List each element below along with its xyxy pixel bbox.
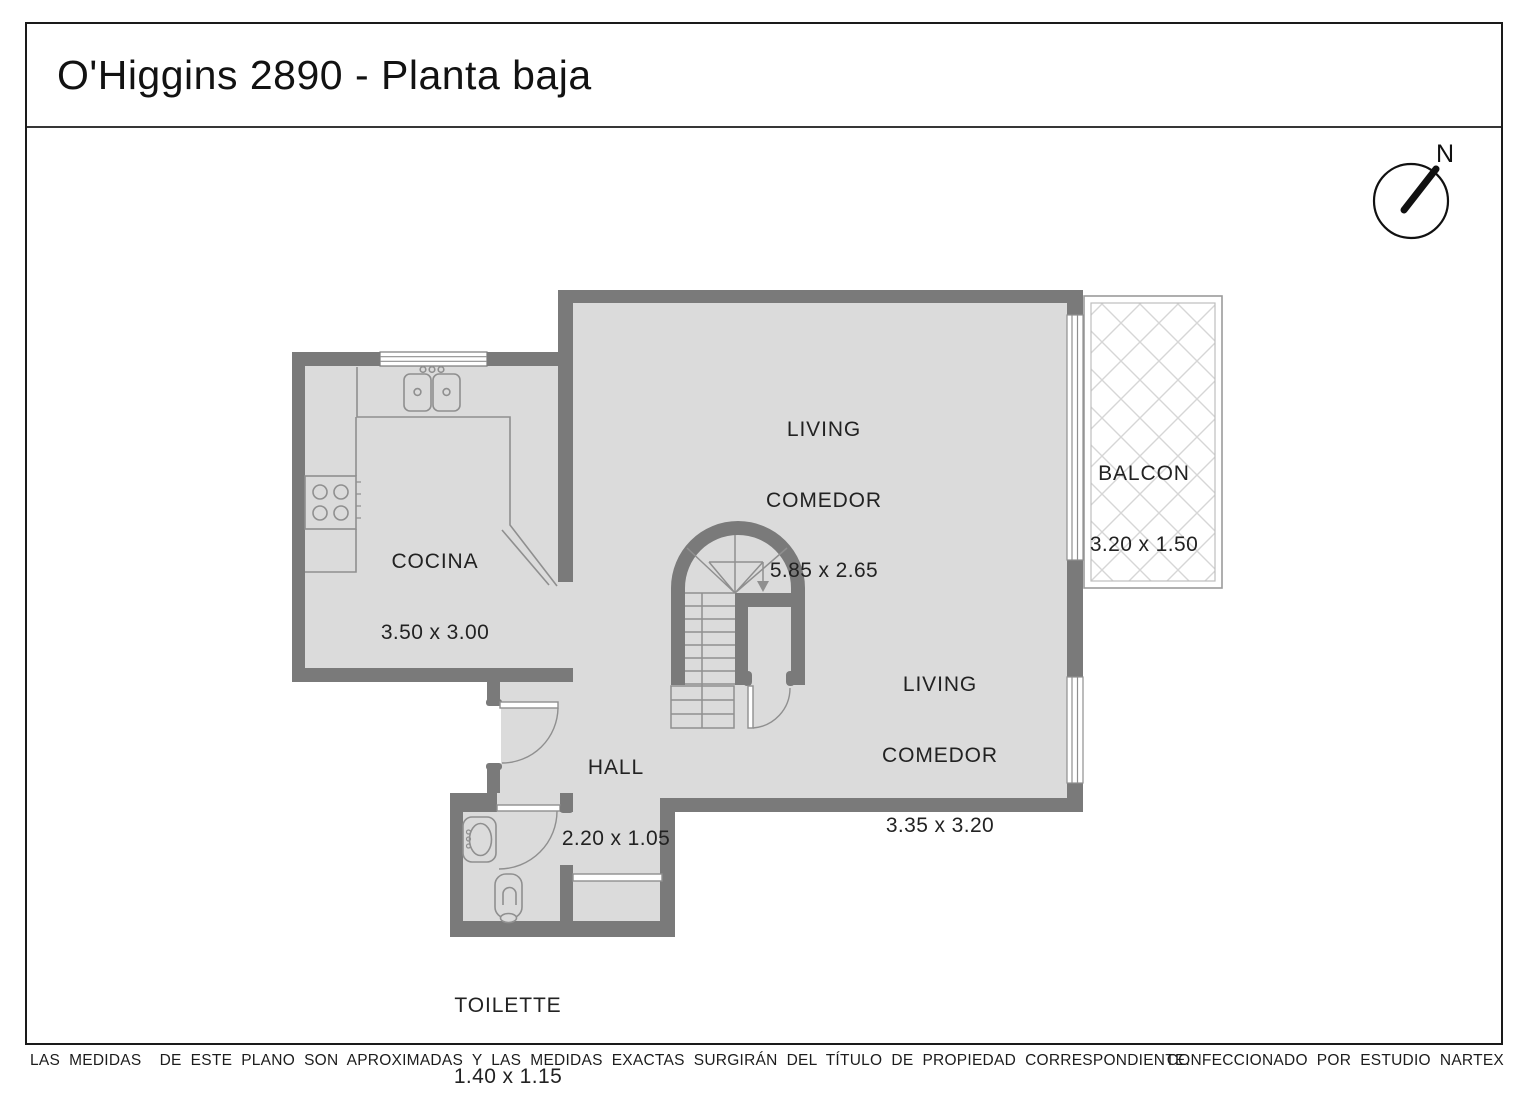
room-name: LIVING	[882, 673, 998, 697]
room-dims: 3.20 x 1.50	[1090, 533, 1198, 557]
entrance-opening	[486, 705, 501, 765]
page-title: O'Higgins 2890 - Planta baja	[57, 52, 592, 99]
room-name: TOILETTE	[454, 994, 562, 1018]
wall-kitchen-left	[292, 352, 305, 682]
compass-north-label: N	[1436, 140, 1454, 169]
bathroom-sink-icon	[463, 817, 496, 862]
room-name: HALL	[562, 756, 670, 780]
kitchen-window	[380, 352, 487, 366]
room-label-living-comedor-1: LIVING COMEDOR 5.85 x 2.65	[766, 371, 882, 606]
room-dims: 3.35 x 3.20	[882, 814, 998, 838]
wall-living-bottom	[660, 798, 1083, 812]
wall-toilette-right	[560, 865, 573, 937]
wall-toilette-top	[450, 793, 497, 812]
toilet-icon	[495, 874, 522, 923]
floorplan-drawing	[0, 0, 1528, 1080]
wall-kitchen-living	[558, 290, 573, 582]
room-name: LIVING	[766, 418, 882, 442]
room-dims: 3.50 x 3.00	[381, 621, 489, 645]
wall-kitchen-bottom	[292, 668, 573, 682]
room-dims: 2.20 x 1.05	[562, 827, 670, 851]
room-name: COMEDOR	[766, 489, 882, 513]
room-name: COMEDOR	[882, 744, 998, 768]
room-dims: 5.85 x 2.65	[766, 559, 882, 583]
room-label-balcon: BALCON 3.20 x 1.50	[1090, 415, 1198, 580]
room-label-toilette: TOILETTE 1.40 x 1.15	[454, 947, 562, 1112]
room-label-living-comedor-2: LIVING COMEDOR 3.35 x 3.20	[882, 626, 998, 861]
compass-icon	[1374, 164, 1448, 238]
room-name: BALCON	[1090, 462, 1198, 486]
living-window	[1067, 677, 1083, 783]
room-name: COCINA	[381, 550, 489, 574]
balcony-sliding-door	[1067, 315, 1083, 560]
footer-disclaimer: LAS MEDIDAS DE ESTE PLANO SON APROXIMADA…	[30, 1052, 1190, 1070]
wall-living-top	[558, 290, 1083, 303]
wall-toilette-left	[450, 793, 463, 937]
room-label-hall: HALL 2.20 x 1.05	[562, 709, 670, 874]
stove-icon	[305, 476, 361, 529]
footer-credit: CONFECCIONADO POR ESTUDIO NARTEX	[1167, 1052, 1504, 1070]
room-label-cocina: COCINA 3.50 x 3.00	[381, 503, 489, 668]
